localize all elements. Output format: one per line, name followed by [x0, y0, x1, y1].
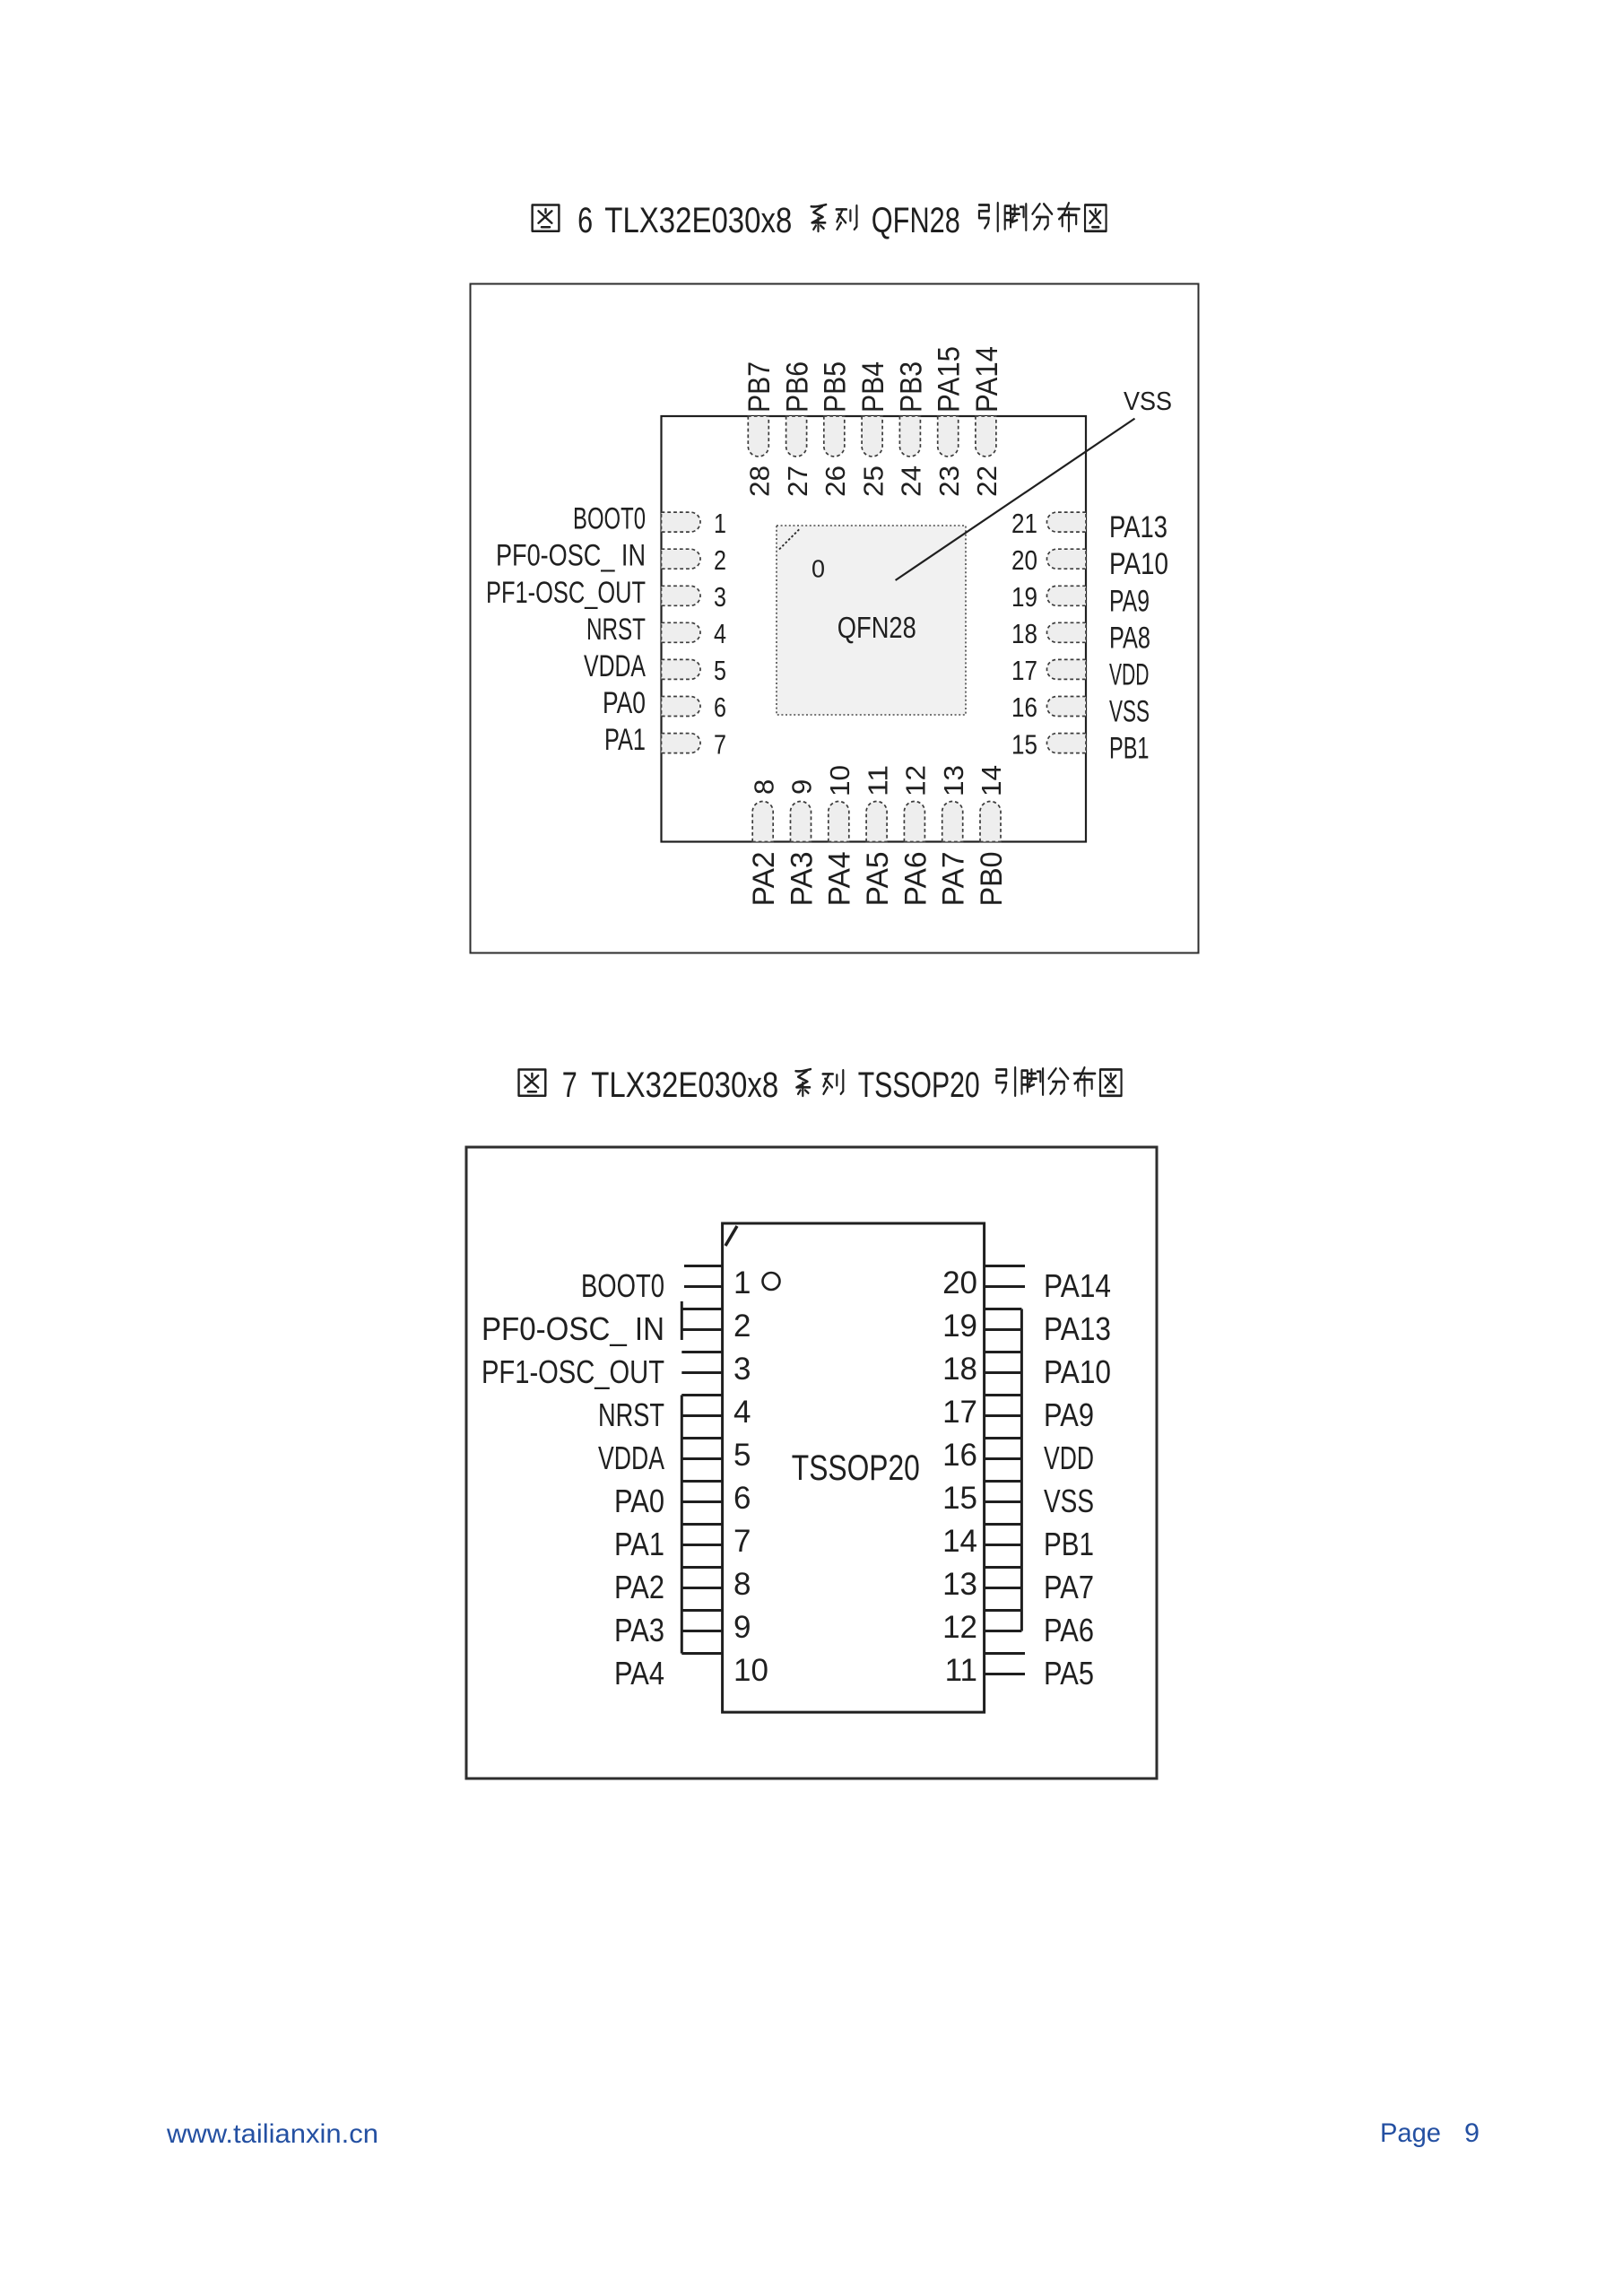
svg-text:PA15: PA15 [933, 346, 967, 413]
svg-text:0: 0 [811, 555, 825, 583]
svg-text:14: 14 [976, 765, 1007, 796]
svg-text:PA1: PA1 [614, 1526, 664, 1562]
svg-text:PA4: PA4 [823, 851, 857, 906]
svg-text:PB6: PB6 [781, 361, 815, 413]
svg-text:8: 8 [748, 779, 779, 795]
svg-text:11: 11 [945, 1653, 977, 1688]
svg-text:PA7: PA7 [1044, 1569, 1094, 1605]
svg-text:20: 20 [942, 1265, 977, 1300]
svg-text:PA5: PA5 [1044, 1655, 1094, 1692]
svg-text:6: 6 [577, 201, 593, 240]
svg-text:PA6: PA6 [1044, 1612, 1094, 1648]
svg-text:12: 12 [942, 1610, 977, 1645]
svg-text:PA10: PA10 [1109, 547, 1168, 581]
svg-text:PB4: PB4 [856, 361, 890, 413]
svg-text:4: 4 [733, 1395, 751, 1430]
svg-text:7: 7 [733, 1524, 751, 1559]
svg-text:BOOT0: BOOT0 [573, 502, 646, 536]
svg-text:PA8: PA8 [1109, 621, 1150, 655]
svg-text:PF1-OSC_OUT: PF1-OSC_OUT [486, 576, 646, 610]
svg-text:9: 9 [786, 779, 818, 795]
svg-text:6: 6 [733, 1481, 751, 1516]
svg-text:QFN28: QFN28 [872, 201, 960, 240]
svg-text:PA14: PA14 [970, 346, 1004, 413]
svg-text:25: 25 [857, 465, 889, 497]
svg-text:Page: Page [1380, 2118, 1441, 2148]
svg-text:16: 16 [1011, 691, 1037, 723]
svg-text:17: 17 [1011, 655, 1037, 686]
svg-text:VSS: VSS [1044, 1483, 1094, 1519]
svg-text:9: 9 [733, 1610, 751, 1645]
svg-text:5: 5 [733, 1438, 751, 1473]
svg-text:16: 16 [942, 1438, 977, 1473]
svg-text:PA6: PA6 [898, 851, 933, 906]
svg-text:7: 7 [714, 728, 726, 760]
svg-text:VDD: VDD [1109, 657, 1150, 691]
svg-text:14: 14 [942, 1524, 977, 1559]
svg-text:7: 7 [562, 1065, 577, 1105]
svg-text:PA0: PA0 [614, 1483, 664, 1519]
svg-text:QFN28: QFN28 [838, 611, 916, 644]
svg-text:27: 27 [782, 465, 813, 497]
svg-text:PB1: PB1 [1109, 732, 1150, 766]
svg-text:PF0-OSC_ IN: PF0-OSC_ IN [496, 539, 646, 573]
svg-text:22: 22 [971, 465, 1002, 497]
svg-text:26: 26 [820, 465, 851, 497]
svg-text:TSSOP20: TSSOP20 [858, 1065, 980, 1105]
svg-text:PA13: PA13 [1044, 1310, 1111, 1347]
svg-text:VDDA: VDDA [598, 1439, 664, 1476]
svg-text:PB1: PB1 [1044, 1526, 1094, 1562]
svg-text:PA5: PA5 [861, 851, 895, 906]
svg-text:18: 18 [942, 1352, 977, 1387]
svg-text:19: 19 [942, 1309, 977, 1344]
svg-text:PA9: PA9 [1044, 1396, 1094, 1433]
svg-text:10: 10 [824, 765, 855, 796]
svg-text:PA14: PA14 [1044, 1267, 1111, 1304]
svg-text:6: 6 [714, 691, 726, 723]
svg-text:17: 17 [942, 1395, 977, 1430]
svg-text:15: 15 [942, 1481, 977, 1516]
svg-text:PB7: PB7 [742, 361, 777, 413]
svg-text:PB5: PB5 [819, 361, 853, 413]
svg-text:NRST: NRST [586, 613, 646, 647]
svg-text:4: 4 [714, 618, 726, 649]
svg-text:5: 5 [714, 655, 726, 686]
svg-text:21: 21 [1011, 508, 1037, 539]
svg-text:2: 2 [733, 1309, 751, 1344]
svg-text:PA10: PA10 [1044, 1353, 1111, 1390]
svg-text:PA1: PA1 [604, 723, 646, 757]
svg-text:20: 20 [1011, 544, 1037, 576]
svg-text:15: 15 [1011, 728, 1037, 760]
svg-text:VDDA: VDDA [584, 649, 646, 683]
svg-text:24: 24 [896, 465, 927, 497]
svg-text:PA0: PA0 [603, 686, 646, 720]
svg-text:PA7: PA7 [937, 851, 971, 906]
svg-text:BOOT0: BOOT0 [581, 1267, 664, 1304]
svg-text:19: 19 [1011, 581, 1037, 613]
svg-text:1: 1 [714, 508, 726, 539]
svg-text:TLX32E030x8: TLX32E030x8 [591, 1065, 778, 1105]
svg-text:3: 3 [714, 581, 726, 613]
svg-text:PA9: PA9 [1109, 584, 1150, 618]
svg-text:8: 8 [733, 1567, 751, 1602]
svg-text:PA13: PA13 [1109, 510, 1167, 544]
svg-text:9: 9 [1464, 2118, 1480, 2148]
svg-text:10: 10 [733, 1653, 768, 1688]
svg-text:TLX32E030x8: TLX32E030x8 [604, 201, 792, 240]
svg-text:11: 11 [862, 765, 893, 796]
svg-text:VSS: VSS [1124, 387, 1172, 416]
svg-text:28: 28 [744, 465, 776, 497]
svg-text:PA2: PA2 [747, 851, 781, 906]
svg-text:13: 13 [942, 1567, 977, 1602]
svg-text:3: 3 [733, 1352, 751, 1387]
svg-text:PB0: PB0 [975, 851, 1009, 906]
svg-text:PF0-OSC_ IN: PF0-OSC_ IN [482, 1310, 664, 1347]
svg-text:12: 12 [900, 765, 932, 796]
svg-text:PB3: PB3 [894, 361, 928, 413]
svg-text:VDD: VDD [1044, 1439, 1094, 1476]
svg-text:2: 2 [714, 544, 726, 576]
svg-text:www.tailianxin.cn: www.tailianxin.cn [166, 2119, 378, 2149]
svg-text:13: 13 [938, 765, 969, 796]
svg-text:PA3: PA3 [614, 1612, 664, 1648]
svg-text:NRST: NRST [598, 1396, 664, 1433]
svg-text:1: 1 [733, 1265, 751, 1300]
svg-text:PA4: PA4 [614, 1655, 664, 1692]
svg-text:23: 23 [933, 465, 965, 497]
svg-text:PF1-OSC_OUT: PF1-OSC_OUT [482, 1353, 664, 1390]
svg-text:TSSOP20: TSSOP20 [792, 1448, 920, 1488]
svg-text:VSS: VSS [1109, 695, 1150, 729]
svg-text:18: 18 [1011, 618, 1037, 649]
svg-text:PA2: PA2 [614, 1569, 664, 1605]
svg-text:PA3: PA3 [785, 851, 819, 906]
